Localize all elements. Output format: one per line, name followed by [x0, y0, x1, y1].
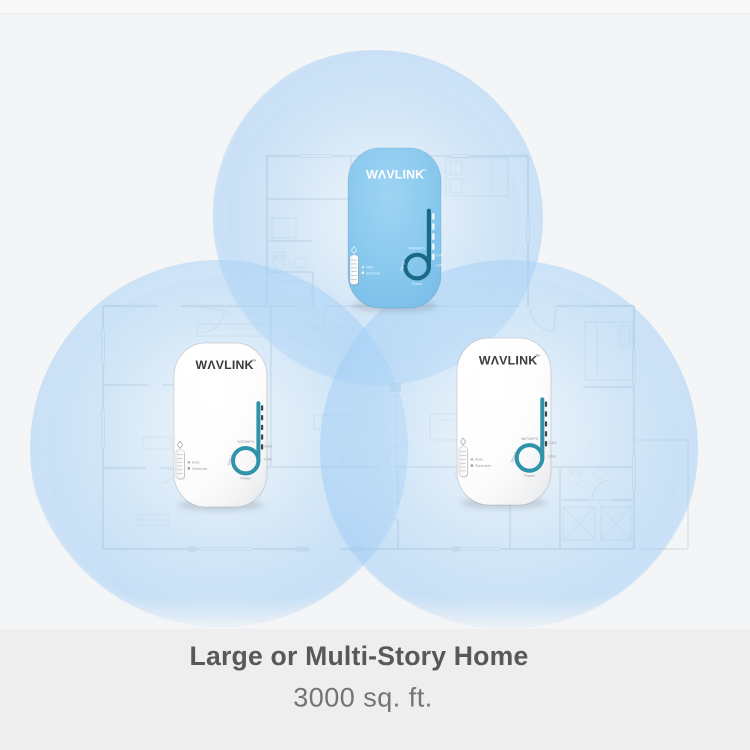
- svg-text:LAN: LAN: [436, 263, 444, 267]
- svg-text:Power: Power: [412, 282, 423, 286]
- svg-text:WΛVLINK: WΛVLINK: [366, 167, 424, 181]
- svg-text:Auto: Auto: [192, 461, 200, 465]
- svg-text:3000 sq. ft.: 3000 sq. ft.: [293, 683, 433, 713]
- svg-text:LAN: LAN: [264, 458, 272, 462]
- svg-text:2.4G: 2.4G: [264, 444, 272, 448]
- svg-text:Schedule: Schedule: [192, 467, 207, 471]
- svg-text:Auto: Auto: [475, 458, 483, 462]
- svg-text:Ethernet: Ethernet: [366, 271, 380, 275]
- svg-text:Schedule: Schedule: [475, 464, 491, 468]
- svg-text:WΛVLINK: WΛVLINK: [196, 358, 254, 372]
- svg-text:WiFi/WPS: WiFi/WPS: [237, 440, 254, 444]
- svg-text:Large or Multi-Story Home: Large or Multi-Story Home: [190, 641, 529, 671]
- svg-text:Power: Power: [524, 474, 535, 478]
- svg-text:2.4G: 2.4G: [436, 254, 444, 258]
- svg-text:LAN: LAN: [548, 455, 556, 459]
- svg-text:WΛVLINK: WΛVLINK: [479, 353, 538, 367]
- svg-text:WiFi: WiFi: [366, 266, 374, 270]
- svg-text:Power: Power: [240, 477, 251, 481]
- svg-text:WiFi/WPS: WiFi/WPS: [409, 246, 426, 250]
- svg-text:WiFi/WPS: WiFi/WPS: [521, 437, 539, 441]
- svg-text:2.4G: 2.4G: [548, 441, 556, 445]
